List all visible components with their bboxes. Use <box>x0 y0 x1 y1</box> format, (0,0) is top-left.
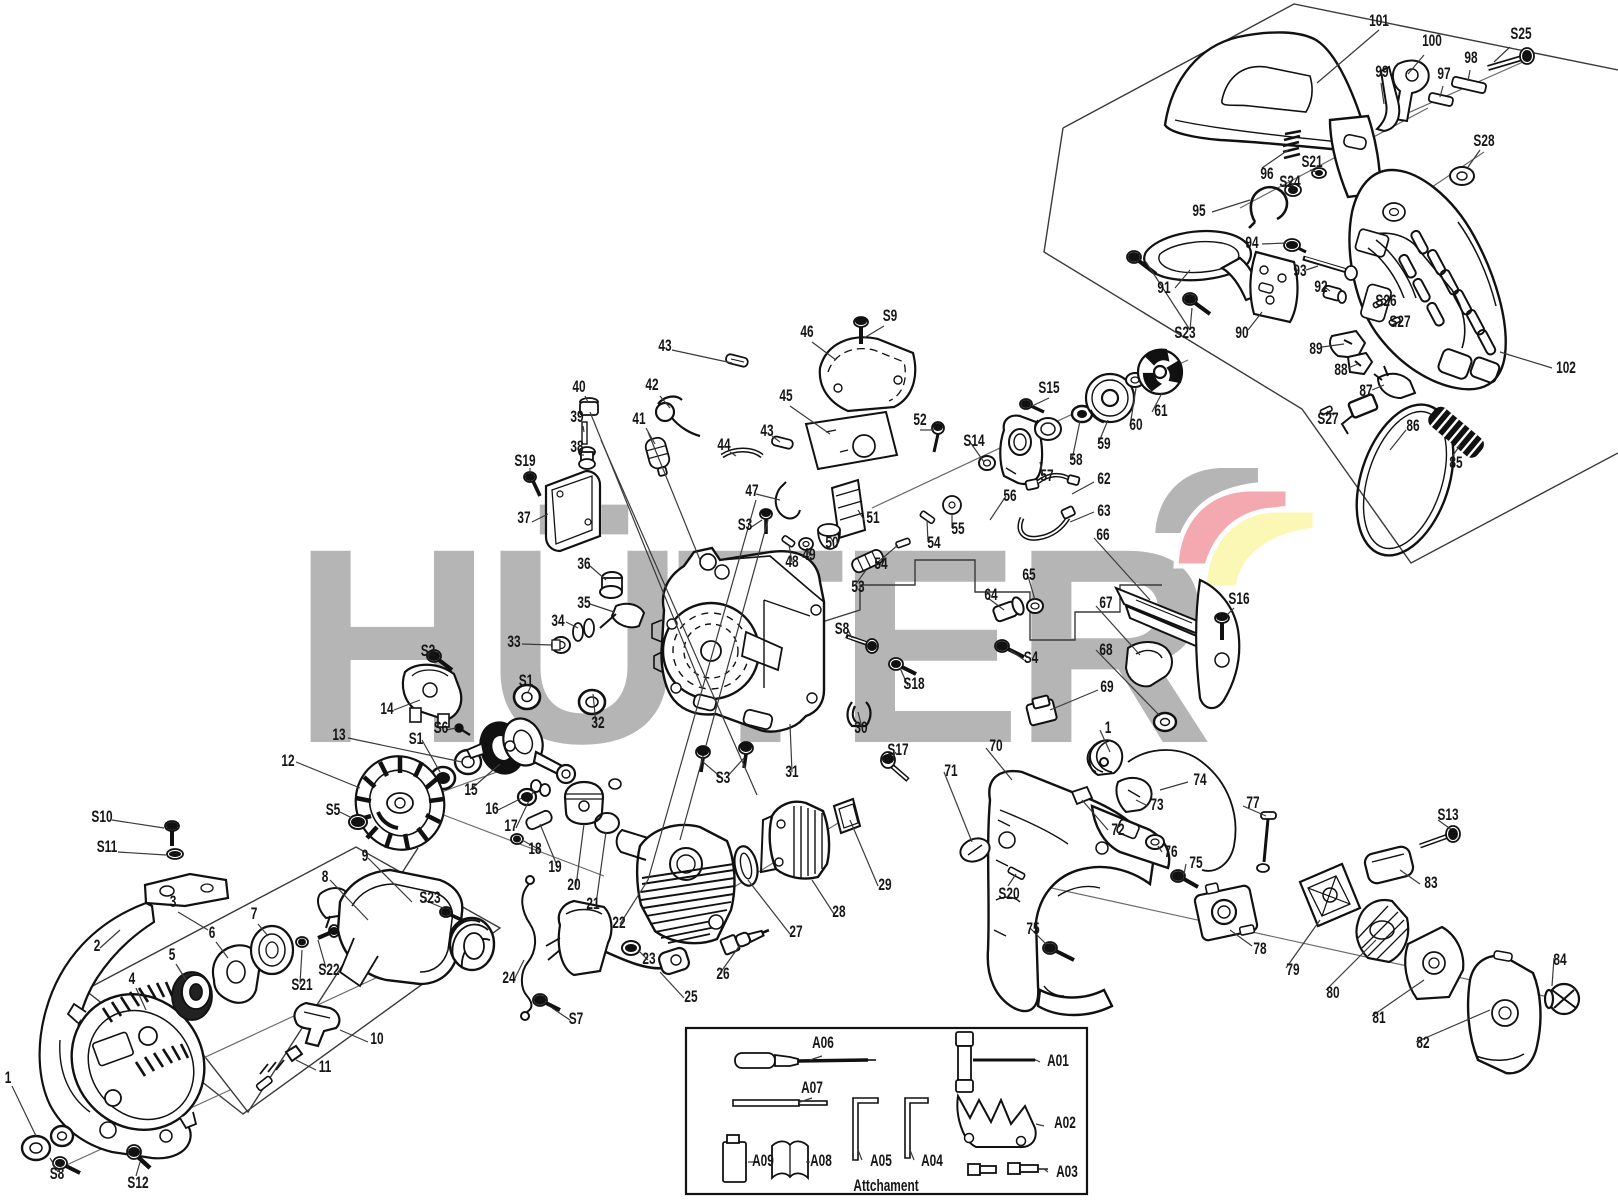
svg-text:23: 23 <box>642 950 655 968</box>
svg-text:S20: S20 <box>998 885 1019 903</box>
svg-text:37: 37 <box>517 509 530 527</box>
svg-text:82: 82 <box>1416 1034 1429 1052</box>
svg-text:85: 85 <box>1449 454 1462 472</box>
svg-text:84: 84 <box>1553 951 1566 969</box>
svg-text:31: 31 <box>785 763 798 781</box>
svg-text:6: 6 <box>209 924 216 942</box>
svg-text:4: 4 <box>129 970 136 988</box>
svg-text:54: 54 <box>874 555 887 573</box>
svg-text:93: 93 <box>1293 262 1306 280</box>
svg-text:43: 43 <box>658 337 671 355</box>
svg-text:S4: S4 <box>1024 649 1039 667</box>
svg-text:28: 28 <box>832 903 845 921</box>
svg-text:21: 21 <box>586 895 599 913</box>
svg-text:40: 40 <box>572 378 585 396</box>
svg-text:41: 41 <box>632 410 645 428</box>
svg-text:44: 44 <box>717 436 730 454</box>
svg-text:10: 10 <box>370 1030 383 1048</box>
svg-text:98: 98 <box>1464 49 1477 67</box>
svg-text:A01: A01 <box>1047 1052 1069 1070</box>
svg-text:64: 64 <box>984 586 997 604</box>
svg-text:53: 53 <box>851 578 864 596</box>
svg-text:15: 15 <box>464 781 477 799</box>
svg-text:13: 13 <box>332 726 345 744</box>
svg-text:S8: S8 <box>50 1165 65 1183</box>
svg-text:32: 32 <box>591 714 604 732</box>
svg-text:71: 71 <box>944 762 957 780</box>
svg-text:73: 73 <box>1150 796 1163 814</box>
svg-text:S28: S28 <box>1473 132 1494 150</box>
svg-text:62: 62 <box>1097 470 1110 488</box>
svg-text:42: 42 <box>645 376 658 394</box>
svg-text:A06: A06 <box>812 1034 834 1052</box>
svg-text:S17: S17 <box>887 741 908 759</box>
svg-text:43: 43 <box>760 422 773 440</box>
svg-text:48: 48 <box>785 553 798 571</box>
svg-text:18: 18 <box>528 840 541 858</box>
svg-text:72: 72 <box>1111 821 1124 839</box>
svg-text:60: 60 <box>1129 416 1142 434</box>
svg-text:29: 29 <box>878 876 891 894</box>
svg-text:91: 91 <box>1157 279 1170 297</box>
svg-text:56: 56 <box>1003 487 1016 505</box>
svg-text:16: 16 <box>485 800 498 818</box>
svg-text:17: 17 <box>504 817 517 835</box>
svg-text:67: 67 <box>1099 594 1112 612</box>
svg-text:87: 87 <box>1359 382 1372 400</box>
svg-text:46: 46 <box>800 323 813 341</box>
svg-text:51: 51 <box>866 509 879 527</box>
svg-text:S15: S15 <box>1038 379 1059 397</box>
svg-text:S1: S1 <box>519 672 534 690</box>
svg-text:30: 30 <box>854 719 867 737</box>
svg-text:S11: S11 <box>97 838 117 856</box>
svg-text:34: 34 <box>551 612 564 630</box>
svg-text:11: 11 <box>319 1058 332 1076</box>
svg-text:S19: S19 <box>514 452 535 470</box>
svg-text:33: 33 <box>507 633 520 651</box>
svg-text:100: 100 <box>1422 32 1442 50</box>
svg-text:39: 39 <box>570 408 583 426</box>
svg-text:S13: S13 <box>1437 806 1458 824</box>
svg-text:A02: A02 <box>1054 1114 1076 1132</box>
svg-text:75: 75 <box>1026 920 1039 938</box>
svg-text:2: 2 <box>94 937 101 955</box>
svg-text:45: 45 <box>779 387 792 405</box>
svg-text:S2: S2 <box>421 642 436 660</box>
svg-text:83: 83 <box>1424 874 1437 892</box>
svg-text:27: 27 <box>789 923 802 941</box>
svg-text:36: 36 <box>577 555 590 573</box>
svg-text:101: 101 <box>1369 12 1389 30</box>
svg-text:S21: S21 <box>1301 153 1322 171</box>
svg-text:S24: S24 <box>1279 173 1300 191</box>
svg-text:68: 68 <box>1099 641 1112 659</box>
svg-text:92: 92 <box>1314 278 1327 296</box>
svg-text:S18: S18 <box>903 675 924 693</box>
svg-text:57: 57 <box>1040 467 1053 485</box>
svg-text:24: 24 <box>502 969 515 987</box>
svg-text:66: 66 <box>1096 526 1109 544</box>
svg-text:S16: S16 <box>1228 590 1249 608</box>
svg-text:S1: S1 <box>409 730 424 748</box>
svg-text:A09: A09 <box>752 1152 774 1170</box>
svg-text:S23: S23 <box>1174 324 1195 342</box>
svg-text:63: 63 <box>1097 502 1110 520</box>
svg-text:S26: S26 <box>1375 292 1396 310</box>
svg-text:69: 69 <box>1100 678 1113 696</box>
svg-text:S3: S3 <box>716 769 731 787</box>
svg-text:26: 26 <box>716 965 729 983</box>
svg-text:77: 77 <box>1246 794 1259 812</box>
svg-text:1: 1 <box>5 1069 12 1087</box>
svg-text:S3: S3 <box>738 516 753 534</box>
svg-text:74: 74 <box>1193 771 1206 789</box>
svg-text:99: 99 <box>1375 63 1388 81</box>
svg-text:89: 89 <box>1309 340 1322 358</box>
svg-text:75: 75 <box>1189 854 1202 872</box>
svg-text:8: 8 <box>322 868 329 886</box>
svg-text:S21: S21 <box>291 976 312 994</box>
svg-text:S7: S7 <box>569 1010 584 1028</box>
svg-text:14: 14 <box>380 700 393 718</box>
svg-text:52: 52 <box>913 411 926 429</box>
svg-text:20: 20 <box>567 876 580 894</box>
svg-text:50: 50 <box>825 534 838 552</box>
svg-text:7: 7 <box>251 905 258 923</box>
svg-text:3: 3 <box>170 893 177 911</box>
svg-text:61: 61 <box>1154 402 1167 420</box>
svg-text:79: 79 <box>1286 961 1299 979</box>
svg-text:80: 80 <box>1326 984 1339 1002</box>
svg-text:S23: S23 <box>419 889 440 907</box>
svg-text:S27: S27 <box>1389 313 1410 331</box>
svg-text:12: 12 <box>281 752 294 770</box>
svg-text:59: 59 <box>1097 435 1110 453</box>
svg-text:A03: A03 <box>1056 1163 1078 1181</box>
svg-text:S6: S6 <box>434 719 449 737</box>
svg-text:55: 55 <box>951 520 964 538</box>
svg-text:70: 70 <box>989 737 1002 755</box>
svg-text:19: 19 <box>548 858 561 876</box>
svg-text:S12: S12 <box>127 1174 148 1192</box>
svg-text:88: 88 <box>1334 361 1347 379</box>
svg-text:A08: A08 <box>810 1152 832 1170</box>
svg-text:95: 95 <box>1192 202 1205 220</box>
svg-text:25: 25 <box>684 988 697 1006</box>
svg-text:S9: S9 <box>883 307 898 325</box>
svg-text:58: 58 <box>1069 451 1082 469</box>
svg-text:22: 22 <box>612 914 625 932</box>
svg-text:S25: S25 <box>1510 25 1531 43</box>
svg-text:76: 76 <box>1164 843 1177 861</box>
svg-text:81: 81 <box>1372 1009 1385 1027</box>
svg-text:47: 47 <box>745 482 758 500</box>
svg-text:96: 96 <box>1260 165 1273 183</box>
svg-text:A04: A04 <box>921 1152 943 1170</box>
svg-text:5: 5 <box>169 946 176 964</box>
svg-text:S22: S22 <box>318 961 339 979</box>
svg-text:78: 78 <box>1253 940 1266 958</box>
svg-text:S10: S10 <box>91 808 112 826</box>
svg-text:49: 49 <box>802 546 815 564</box>
svg-text:A05: A05 <box>870 1152 892 1170</box>
svg-text:S8: S8 <box>835 620 850 638</box>
svg-text:A07: A07 <box>801 1079 823 1097</box>
svg-text:90: 90 <box>1235 324 1248 342</box>
svg-text:54: 54 <box>927 534 940 552</box>
svg-text:Attchament: Attchament <box>853 1177 918 1195</box>
svg-text:1: 1 <box>1105 719 1112 737</box>
svg-text:102: 102 <box>1556 359 1576 377</box>
svg-text:97: 97 <box>1437 65 1450 83</box>
svg-text:94: 94 <box>1245 234 1258 252</box>
svg-text:S14: S14 <box>963 432 984 450</box>
svg-text:65: 65 <box>1022 566 1035 584</box>
svg-text:35: 35 <box>577 594 590 612</box>
svg-text:S5: S5 <box>326 801 341 819</box>
svg-text:9: 9 <box>362 847 369 865</box>
svg-text:38: 38 <box>570 438 583 456</box>
svg-text:86: 86 <box>1406 417 1419 435</box>
svg-text:S27: S27 <box>1317 410 1338 428</box>
